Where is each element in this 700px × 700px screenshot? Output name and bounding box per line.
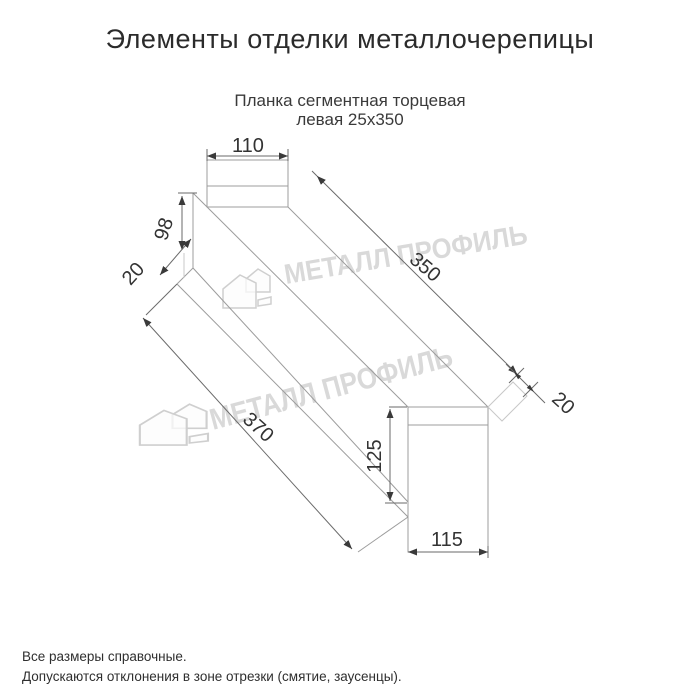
far-end-face [207,160,288,207]
dimension-front-width: 115 [408,529,488,558]
dim-label-98: 98 [150,215,178,243]
dim-label-110: 110 [232,135,264,157]
end-flap [488,382,527,421]
dimensions: 110 98 20 350 20 [118,135,579,558]
dim-label-20-left: 20 [118,258,149,289]
metall-profil-logo-icon [223,269,271,308]
metall-profil-logo-icon [140,404,208,445]
watermark-text: МЕТАЛЛ ПРОФИЛЬ [282,219,530,290]
watermark-lower: МЕТАЛЛ ПРОФИЛЬ [140,340,456,445]
dim-label-20-right: 20 [547,388,578,419]
dim-label-115: 115 [431,529,463,551]
dimension-top-width: 110 [207,135,288,161]
footer-notes: Все размеры справочные. Допускаются откл… [22,647,402,687]
far-bottom-flange [177,268,193,284]
strip-geometry [177,160,527,552]
dimension-front-height: 125 [364,407,407,503]
footer-note-2: Допускаются отклонения в зоне отрезки (с… [22,667,402,687]
near-bottom-flange-edge [358,517,408,552]
dim-label-125: 125 [364,439,386,472]
technical-drawing: МЕТАЛЛ ПРОФИЛЬ МЕТАЛЛ ПРОФИЛЬ [0,0,700,700]
dimension-left-height: 98 [150,193,197,250]
dimension-end-flange: 20 [506,364,579,419]
footer-note-1: Все размеры справочные. [22,647,402,667]
strip-edge-bottom-outer [177,284,408,517]
dimension-left-flange: 20 [118,239,191,290]
catalog-drawing-page: Элементы отделки металлочерепицы Планка … [0,0,700,700]
